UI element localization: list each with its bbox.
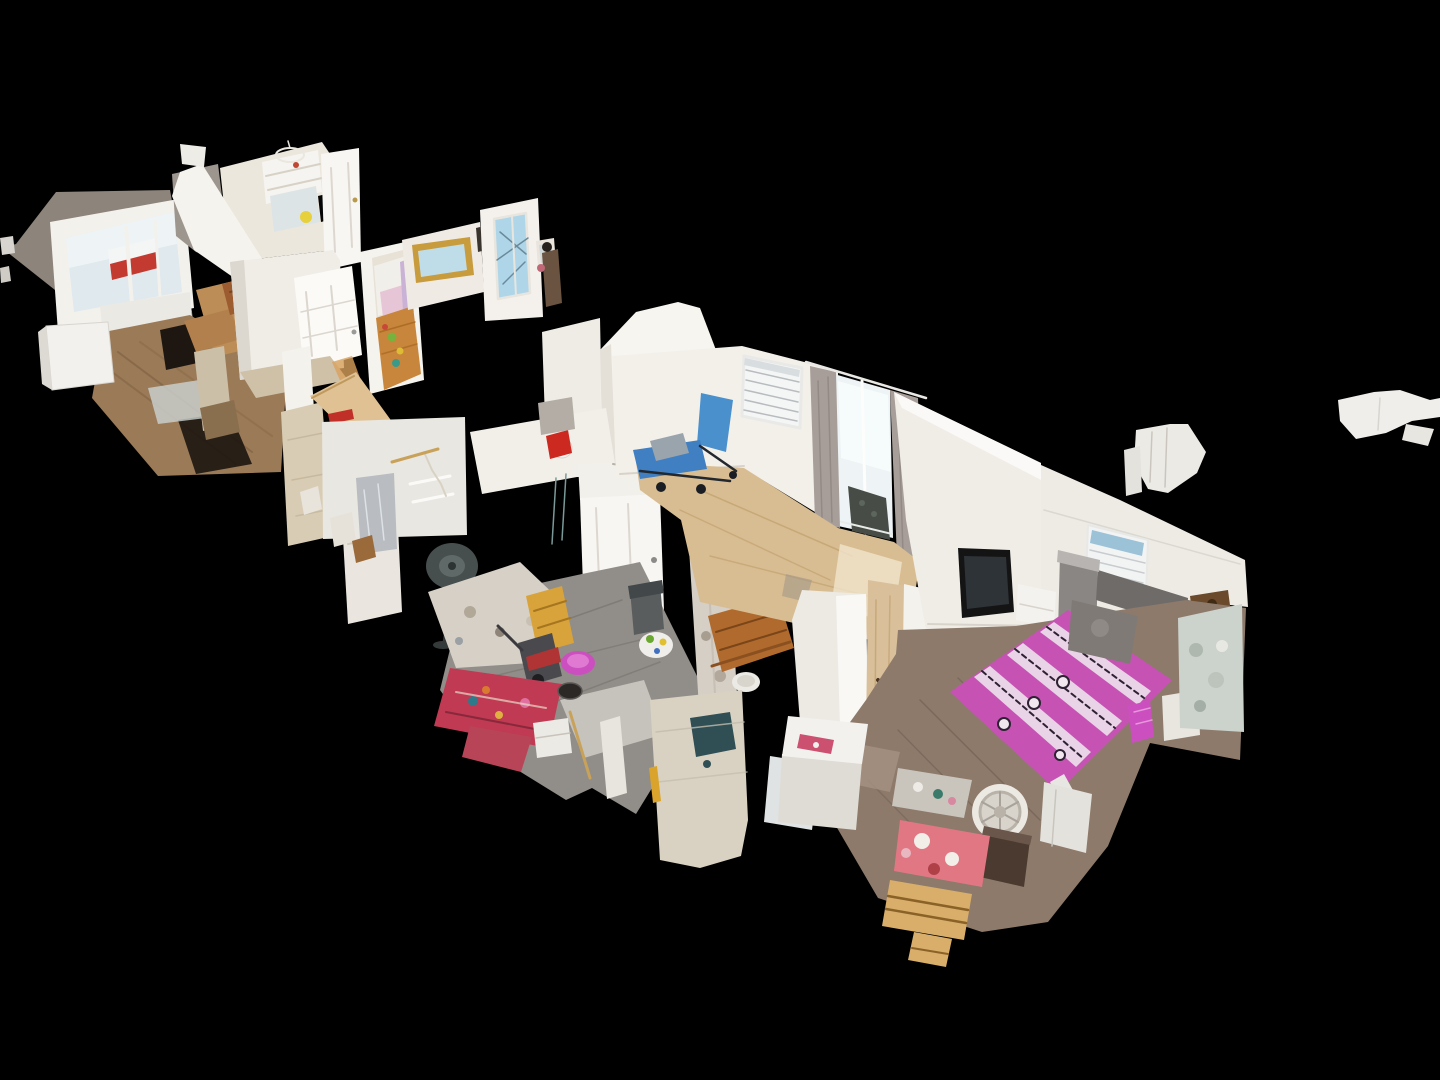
clothes-white-2 bbox=[945, 852, 959, 866]
clothes-red bbox=[928, 863, 940, 875]
chair-wheel-1 bbox=[656, 482, 666, 492]
dark-pot bbox=[558, 683, 582, 699]
plant-leaf-1 bbox=[859, 500, 865, 506]
bed-diamond-5 bbox=[1055, 750, 1065, 760]
clutter-dot-1 bbox=[464, 606, 476, 618]
vanity-front bbox=[778, 754, 862, 830]
plant-leaf-2 bbox=[871, 511, 877, 517]
dollhouse-3d-viewer[interactable] bbox=[0, 0, 1440, 1080]
pink-laundry-basket bbox=[1128, 700, 1154, 743]
hamper-toy-green bbox=[646, 635, 654, 643]
clutter-teal-dot bbox=[933, 789, 943, 799]
hamper-toy-yellow bbox=[660, 639, 667, 646]
clutter-pink-dot bbox=[948, 797, 956, 805]
baby-mobile-dot bbox=[293, 162, 299, 168]
wardrobe-mottle-1 bbox=[1189, 643, 1203, 657]
clothes-white-1 bbox=[914, 833, 930, 849]
dollhouse-scene-canvas[interactable] bbox=[0, 0, 1440, 1080]
fragment-left-1 bbox=[0, 236, 15, 255]
white-strip-bed-right bbox=[1040, 782, 1092, 853]
stone-mottle-4 bbox=[714, 670, 726, 682]
magazine-dot bbox=[813, 742, 819, 748]
kids-toy-red bbox=[382, 324, 388, 330]
bed-diamond-3 bbox=[998, 718, 1010, 730]
bed-plush-highlight bbox=[1091, 619, 1109, 637]
clutter-dot-4 bbox=[455, 637, 463, 645]
kids-toy-teal bbox=[392, 359, 400, 367]
mirror-hub bbox=[994, 806, 1006, 818]
laundry-door-knob bbox=[651, 557, 657, 563]
chair-wheel-2 bbox=[696, 484, 706, 494]
kids-toy-yellow bbox=[397, 348, 404, 355]
bed-diamond-2 bbox=[1028, 697, 1040, 709]
rug-dot-orange bbox=[482, 686, 490, 694]
bed-diamond-1 bbox=[1057, 676, 1069, 688]
wall-tv-screen bbox=[964, 556, 1009, 609]
fragment-bath-left-1 bbox=[330, 512, 356, 547]
fan-hub bbox=[448, 562, 456, 570]
toy-hamper bbox=[639, 632, 673, 658]
chest-teal-smear bbox=[690, 712, 736, 757]
wardrobe-mottle-2 bbox=[1208, 672, 1224, 688]
entry-hat bbox=[542, 242, 552, 252]
fragment-top-left bbox=[180, 144, 206, 167]
pink-basin-inner bbox=[567, 654, 589, 668]
chair-wheel-3 bbox=[729, 471, 737, 479]
chest-freezer bbox=[46, 322, 114, 390]
hall-door-upper-knob bbox=[353, 198, 358, 203]
entry-pink-item bbox=[537, 264, 545, 272]
gray-beam bbox=[538, 397, 575, 435]
kids-toy-green bbox=[388, 333, 397, 342]
hall-yellow-toy bbox=[300, 211, 312, 223]
hall-door-lower-knob bbox=[352, 330, 357, 335]
stone-mottle-3 bbox=[701, 631, 711, 641]
hamper-toy-blue bbox=[654, 648, 660, 654]
curtain-left bbox=[810, 366, 840, 528]
rug-dot-yellow bbox=[495, 711, 503, 719]
fragment-right-a2 bbox=[1124, 446, 1142, 496]
wardrobe-mottle-3 bbox=[1194, 700, 1206, 712]
white-bucket-inner bbox=[737, 675, 755, 687]
wardrobe-mirror bbox=[1178, 604, 1244, 732]
rug-dot-teal bbox=[468, 696, 478, 706]
clothes-pink bbox=[901, 848, 911, 858]
clutter-white-dot bbox=[913, 782, 923, 792]
wardrobe-white-spot bbox=[1216, 640, 1228, 652]
chest-teal-dot bbox=[703, 760, 711, 768]
